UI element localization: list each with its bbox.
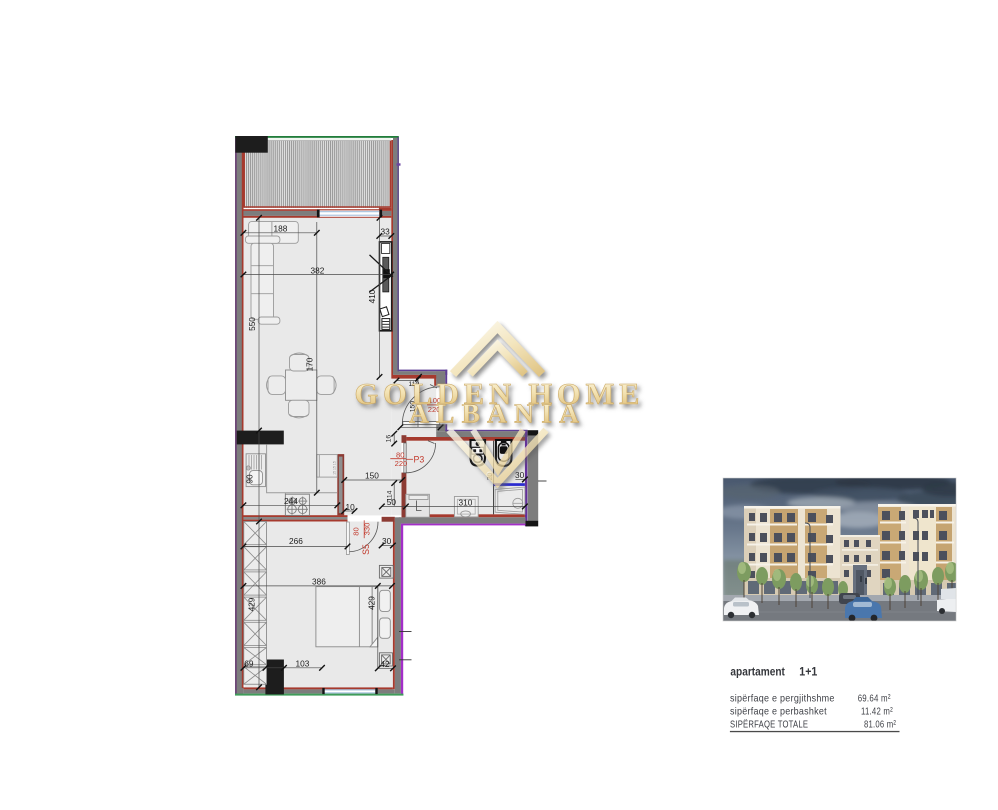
svg-text:150: 150 [365, 471, 379, 481]
svg-text:81.06 m²: 81.06 m² [864, 719, 896, 730]
svg-text:SIPËRFAQE TOTALE: SIPËRFAQE TOTALE [730, 718, 808, 730]
svg-text:410: 410 [367, 289, 377, 303]
svg-text:429: 429 [246, 597, 256, 611]
svg-text:330: 330 [363, 523, 372, 536]
svg-text:80: 80 [352, 527, 361, 535]
svg-text:30: 30 [382, 536, 392, 546]
svg-text:69: 69 [244, 658, 254, 668]
svg-text:244: 244 [284, 496, 298, 506]
svg-text:429: 429 [367, 596, 377, 610]
svg-text:P3: P3 [414, 455, 425, 465]
svg-text:33: 33 [381, 227, 391, 237]
svg-text:310: 310 [459, 498, 473, 508]
svg-text:266: 266 [289, 536, 303, 546]
svg-text:10: 10 [346, 502, 356, 512]
svg-text:114: 114 [386, 490, 393, 501]
svg-text:30: 30 [515, 470, 525, 480]
svg-text:42: 42 [380, 659, 390, 669]
svg-text:188: 188 [274, 224, 288, 234]
svg-text:90: 90 [245, 474, 255, 484]
svg-text:386: 386 [312, 576, 326, 586]
svg-text:103: 103 [296, 658, 310, 668]
svg-text:sipërfaqe e perbashket: sipërfaqe e perbashket [730, 707, 827, 718]
svg-text:220: 220 [395, 459, 408, 468]
svg-text:11.42 m²: 11.42 m² [861, 707, 893, 718]
svg-text:550: 550 [247, 317, 257, 331]
svg-text:382: 382 [311, 265, 325, 275]
svg-text:apartament: apartament [730, 665, 785, 679]
svg-text:S5: S5 [361, 544, 371, 555]
svg-text:1+1: 1+1 [799, 665, 817, 679]
svg-text:15 15 15: 15 15 15 [333, 461, 337, 475]
svg-text:sipërfaqe e pergjithshme: sipërfaqe e pergjithshme [730, 694, 835, 705]
svg-text:69.64 m²: 69.64 m² [858, 694, 891, 705]
svg-text:16: 16 [386, 435, 393, 443]
svg-text:170: 170 [304, 357, 314, 371]
